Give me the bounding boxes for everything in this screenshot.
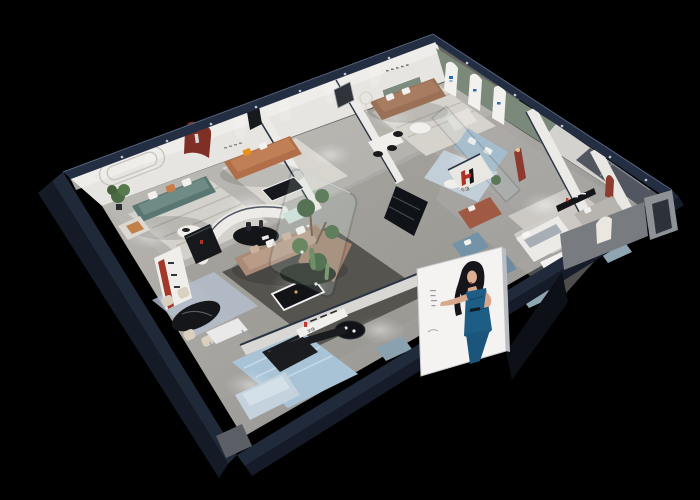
isometric-scene: 华饶 <box>0 0 700 500</box>
showroom-render: 华饶 <box>0 0 700 500</box>
poster-lightbox <box>417 247 510 376</box>
coffee-table-round <box>409 122 431 134</box>
arched-niche-red-small <box>605 175 614 200</box>
black-chair <box>373 151 383 157</box>
black-chair <box>387 145 397 151</box>
